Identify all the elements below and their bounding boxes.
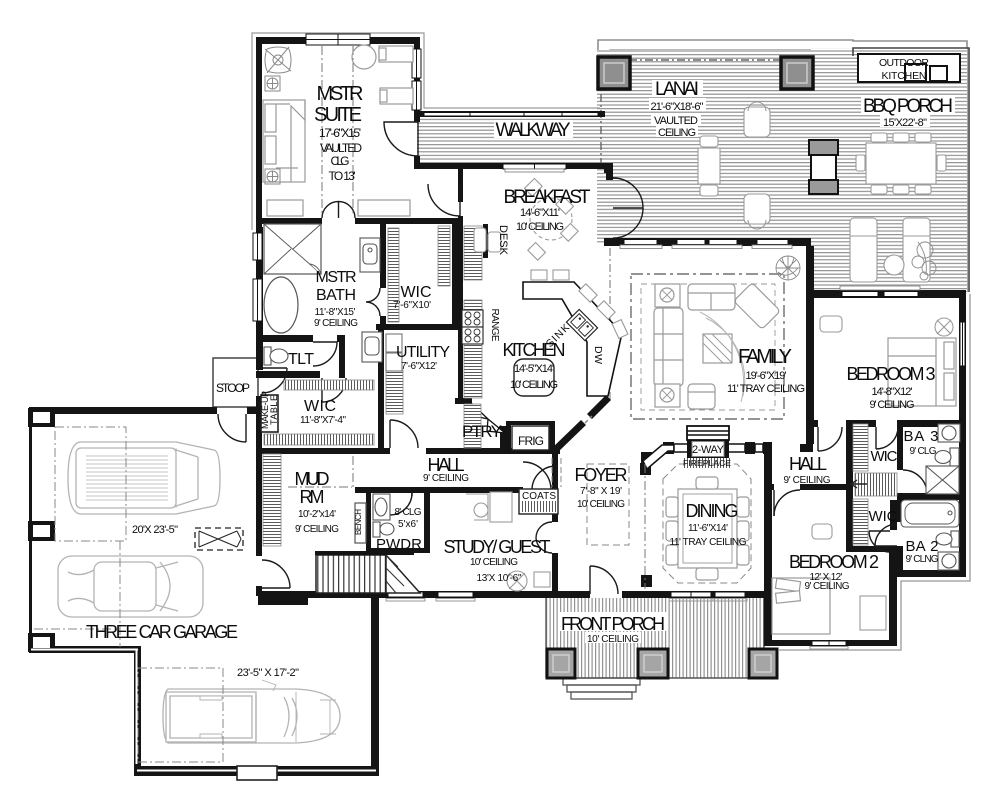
- svg-text:STOOP: STOOP: [216, 381, 250, 395]
- svg-text:BA 2: BA 2: [906, 538, 939, 555]
- svg-text:10' CEILING: 10' CEILING: [470, 557, 518, 568]
- svg-text:11'-8"X7'-4": 11'-8"X7'-4": [300, 415, 346, 426]
- svg-text:DESK: DESK: [497, 225, 509, 256]
- svg-text:MSTR: MSTR: [316, 269, 357, 286]
- svg-text:THREE CAR GARAGE: THREE CAR GARAGE: [86, 622, 238, 642]
- svg-text:LANAI: LANAI: [655, 79, 699, 100]
- svg-text:TABLE: TABLE: [269, 395, 279, 425]
- svg-text:BBQ PORCH: BBQ PORCH: [863, 96, 953, 117]
- svg-text:10' CEILING: 10' CEILING: [510, 379, 558, 391]
- svg-text:15'X22'-8": 15'X22'-8": [883, 117, 927, 129]
- svg-text:FRIG: FRIG: [518, 434, 544, 448]
- svg-text:KITCHEN: KITCHEN: [882, 70, 927, 82]
- svg-text:10' CEILING: 10' CEILING: [516, 221, 564, 233]
- svg-text:7'-8" X 19': 7'-8" X 19': [580, 486, 622, 497]
- svg-text:BEDROOM 3: BEDROOM 3: [847, 364, 936, 384]
- svg-text:COATS: COATS: [522, 491, 556, 502]
- svg-text:STUDY/ GUEST: STUDY/ GUEST: [444, 537, 551, 557]
- svg-text:9' CLG: 9' CLG: [910, 446, 937, 457]
- svg-text:TO 13': TO 13': [329, 169, 356, 183]
- svg-text:BATH: BATH: [316, 287, 356, 304]
- svg-text:23'-5" X 17'-2": 23'-5" X 17'-2": [237, 667, 299, 679]
- svg-text:FOYER: FOYER: [575, 465, 628, 485]
- svg-text:FRONT PORCH: FRONT PORCH: [561, 614, 665, 634]
- svg-text:9' CEILING: 9' CEILING: [784, 475, 831, 486]
- svg-text:7'-6"X12': 7'-6"X12': [401, 361, 437, 372]
- svg-text:WIC: WIC: [401, 284, 432, 301]
- svg-text:PTRY: PTRY: [462, 422, 502, 441]
- svg-text:9' CEILING: 9' CEILING: [423, 473, 469, 484]
- svg-text:BEDROOM 2: BEDROOM 2: [789, 552, 879, 572]
- svg-text:OUTDOOR: OUTDOOR: [879, 57, 929, 69]
- svg-text:BENCH: BENCH: [354, 509, 363, 535]
- svg-text:CEILING: CEILING: [658, 127, 696, 139]
- svg-text:BREAKFAST: BREAKFAST: [504, 187, 591, 208]
- svg-text:DW: DW: [592, 346, 604, 364]
- svg-text:BA 3: BA 3: [904, 428, 939, 445]
- svg-text:9' CEILING: 9' CEILING: [314, 318, 358, 329]
- svg-text:UTILITY: UTILITY: [396, 344, 450, 361]
- svg-text:10' CEILING: 10' CEILING: [577, 499, 625, 510]
- svg-text:RANGE: RANGE: [489, 309, 500, 342]
- svg-text:WIC: WIC: [869, 508, 898, 525]
- svg-text:VAULTED: VAULTED: [654, 115, 698, 127]
- svg-text:MSTR: MSTR: [317, 83, 364, 105]
- svg-text:11'-6"X14': 11'-6"X14': [688, 523, 728, 534]
- svg-text:WIC: WIC: [871, 448, 898, 465]
- svg-text:21'-6"X18'-6": 21'-6"X18'-6": [651, 101, 704, 113]
- svg-text:9' CLNG: 9' CLNG: [906, 554, 939, 565]
- svg-text:RM: RM: [300, 487, 325, 507]
- svg-text:14'-8"X12': 14'-8"X12': [872, 386, 913, 398]
- svg-text:9' CEILING: 9' CEILING: [805, 581, 850, 592]
- svg-text:VAULTED: VAULTED: [320, 141, 362, 155]
- svg-text:WIC: WIC: [304, 398, 336, 415]
- svg-text:DINING: DINING: [686, 501, 739, 521]
- svg-text:2-WAY: 2-WAY: [692, 444, 725, 456]
- svg-text:CLG: CLG: [331, 154, 350, 168]
- svg-text:10'-2"x14': 10'-2"x14': [298, 509, 336, 520]
- svg-text:HALL: HALL: [789, 454, 827, 474]
- svg-text:8' CLG: 8' CLG: [395, 507, 422, 518]
- svg-text:PWDR: PWDR: [376, 536, 422, 553]
- svg-text:7'-6"X10': 7'-6"X10': [393, 300, 431, 311]
- svg-text:HALL: HALL: [428, 455, 465, 475]
- svg-text:19'-6"X19': 19'-6"X19': [746, 370, 787, 382]
- svg-text:FIREPLACE: FIREPLACE: [683, 458, 731, 468]
- svg-text:14'-5"X14': 14'-5"X14': [514, 363, 554, 375]
- svg-text:9' CEILING: 9' CEILING: [870, 399, 915, 411]
- svg-text:MUD: MUD: [295, 469, 330, 489]
- svg-text:14'-6"X11': 14'-6"X11': [520, 207, 560, 219]
- svg-text:11' TRAY CEILING: 11' TRAY CEILING: [727, 383, 805, 395]
- svg-text:11'-8"X15': 11'-8"X15': [315, 307, 356, 318]
- svg-text:WALKWAY: WALKWAY: [496, 120, 571, 141]
- svg-text:10' CEILING: 10' CEILING: [587, 634, 639, 645]
- svg-text:5'x6': 5'x6': [398, 519, 418, 530]
- svg-text:9' CEILING: 9' CEILING: [295, 524, 339, 535]
- svg-text:20'X 23'-5": 20'X 23'-5": [132, 524, 178, 536]
- svg-text:13'X 10'-6": 13'X 10'-6": [477, 573, 522, 584]
- svg-text:11' TRAY CEILING: 11' TRAY CEILING: [670, 537, 747, 548]
- svg-text:FAMILY: FAMILY: [738, 346, 792, 368]
- svg-text:TLT: TLT: [288, 351, 314, 368]
- svg-text:17'-6"X15': 17'-6"X15': [319, 126, 361, 140]
- svg-text:SUITE: SUITE: [314, 104, 362, 126]
